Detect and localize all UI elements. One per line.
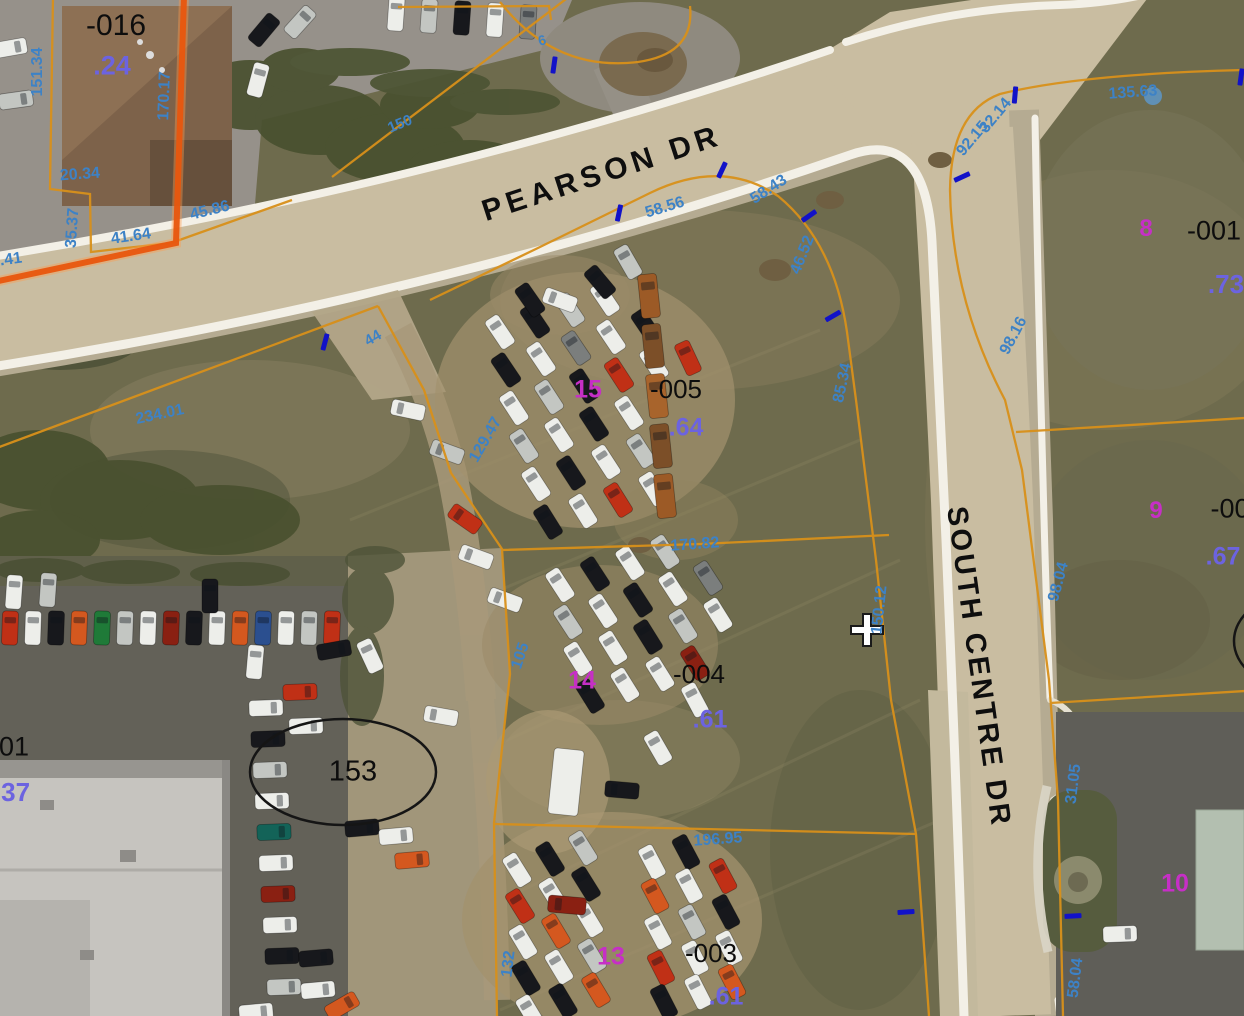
dimension-label: 46.52 bbox=[788, 233, 818, 276]
survey-tick-marker bbox=[1012, 86, 1018, 103]
acreage-label: .61 bbox=[709, 985, 744, 1010]
lot-number-label: 9 bbox=[1149, 499, 1162, 523]
dimension-label: 20.34 bbox=[59, 166, 100, 185]
acreage-label: .61 bbox=[693, 708, 728, 733]
lot-number-label: 10 bbox=[1161, 872, 1189, 897]
dimension-label: 132 bbox=[499, 950, 518, 978]
acreage-label: .73 bbox=[1208, 271, 1244, 297]
dimension-label: 234.01 bbox=[134, 402, 185, 428]
street-label: PEARSON DR bbox=[478, 121, 725, 227]
lot-number-label: 15 bbox=[574, 378, 602, 403]
survey-tick-marker bbox=[897, 909, 914, 915]
dimension-label: 58.43 bbox=[748, 172, 790, 207]
dimension-label: 129.47 bbox=[467, 415, 505, 465]
dimension-label: 58.56 bbox=[644, 194, 687, 221]
parcel-id-label: 153 bbox=[329, 758, 377, 787]
dimension-label: 45.86 bbox=[189, 198, 232, 223]
lot-number-label: 13 bbox=[597, 945, 625, 970]
survey-tick-marker bbox=[1237, 68, 1244, 86]
survey-tick-marker bbox=[615, 204, 623, 222]
dimension-label: 170.17 bbox=[156, 71, 174, 120]
dimension-label: 105 bbox=[509, 641, 532, 671]
survey-tick-marker bbox=[953, 171, 971, 183]
dimension-label: 31.05 bbox=[1064, 763, 1085, 805]
lot-number-label: 14 bbox=[568, 669, 596, 694]
parcel-id-label: -005 bbox=[650, 376, 702, 402]
dimension-label: 151.34 bbox=[30, 48, 46, 97]
dimension-label: 196.95 bbox=[693, 830, 743, 849]
acreage-label: .37 bbox=[0, 779, 30, 805]
dimension-label: 150.12 bbox=[869, 585, 890, 635]
parcel-id-label: -001 bbox=[1187, 218, 1241, 245]
dimension-label: 98.04 bbox=[1046, 561, 1072, 604]
parcel-id-label: -004 bbox=[673, 661, 725, 687]
map-viewport[interactable]: PEARSON DRSOUTH CENTRE DR-016-005-004-00… bbox=[0, 0, 1244, 1016]
dimension-label: 85.34 bbox=[831, 362, 855, 404]
survey-tick-marker bbox=[824, 310, 841, 323]
survey-tick-marker bbox=[550, 56, 557, 74]
acreage-label: .67 bbox=[1206, 545, 1241, 570]
acreage-label: .64 bbox=[669, 416, 704, 441]
lot-number-label: 8 bbox=[1139, 217, 1152, 241]
dimension-label: 150 bbox=[386, 112, 415, 135]
parcel-id-label: -003 bbox=[685, 940, 737, 966]
dimension-label: 35.37 bbox=[64, 207, 83, 248]
dimension-label: 135.63 bbox=[1108, 83, 1158, 102]
dimension-label: .41 bbox=[0, 251, 23, 270]
survey-tick-marker bbox=[716, 161, 728, 179]
dimension-label: 98.16 bbox=[998, 315, 1031, 358]
dimension-label: 44 bbox=[362, 327, 384, 348]
dimension-label: 6 bbox=[536, 32, 547, 48]
survey-tick-marker bbox=[801, 209, 818, 223]
survey-tick-marker bbox=[320, 333, 329, 351]
parcel-id-label: -00 bbox=[1210, 496, 1244, 523]
map-labels-layer: PEARSON DRSOUTH CENTRE DR-016-005-004-00… bbox=[0, 0, 1244, 1016]
dimension-label: 92.15 bbox=[954, 119, 992, 160]
dimension-label: 41.64 bbox=[110, 226, 152, 247]
acreage-label: .24 bbox=[93, 53, 131, 80]
street-label: SOUTH CENTRE DR bbox=[941, 505, 1015, 830]
parcel-id-label: 01 bbox=[0, 734, 29, 761]
dimension-label: 58.04 bbox=[1066, 957, 1087, 999]
parcel-id-label: -016 bbox=[86, 11, 146, 41]
survey-tick-marker bbox=[1064, 913, 1081, 919]
dimension-label: 170.82 bbox=[670, 535, 720, 554]
